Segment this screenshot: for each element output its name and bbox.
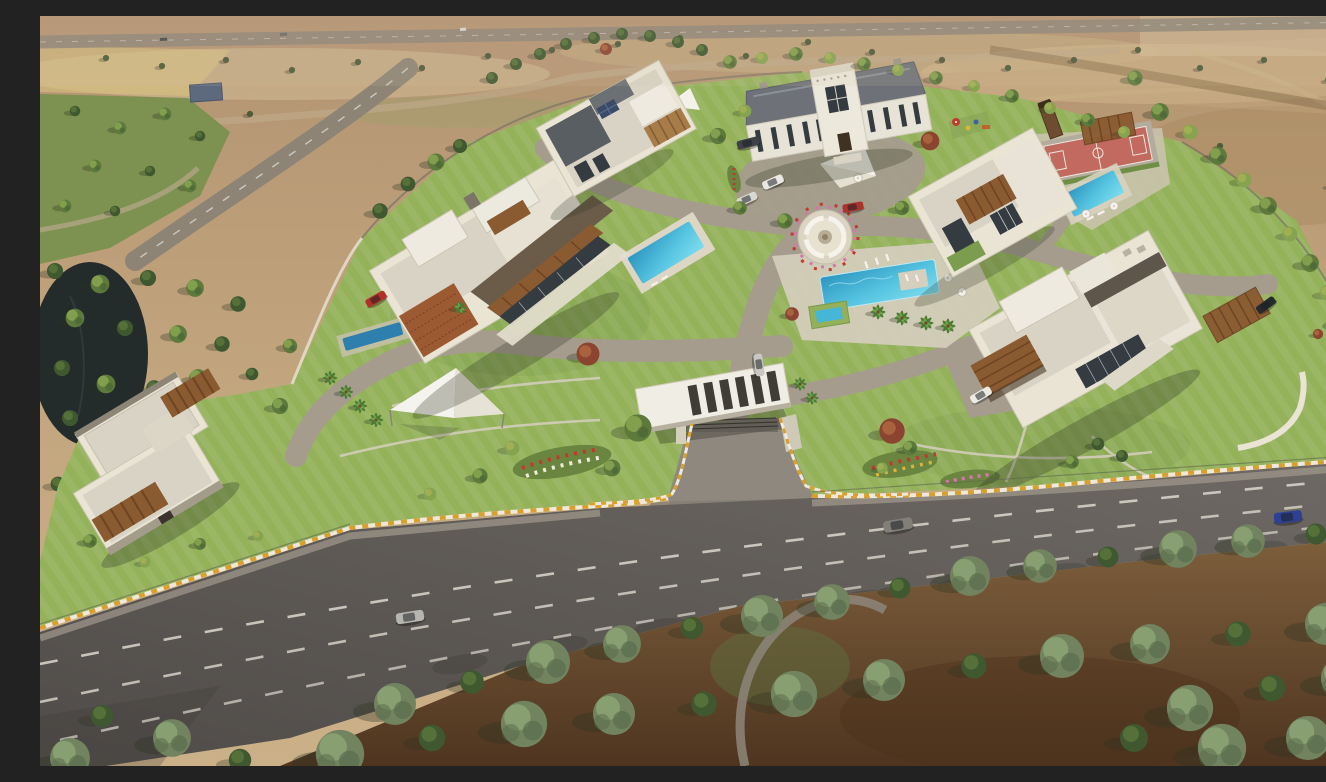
atmospheric-haze xyxy=(40,16,1326,86)
play-slide xyxy=(982,125,990,129)
scene-canvas xyxy=(40,16,1326,766)
play-equipment xyxy=(966,126,971,131)
aerial-render xyxy=(40,16,1326,766)
play-equipment xyxy=(974,120,979,125)
